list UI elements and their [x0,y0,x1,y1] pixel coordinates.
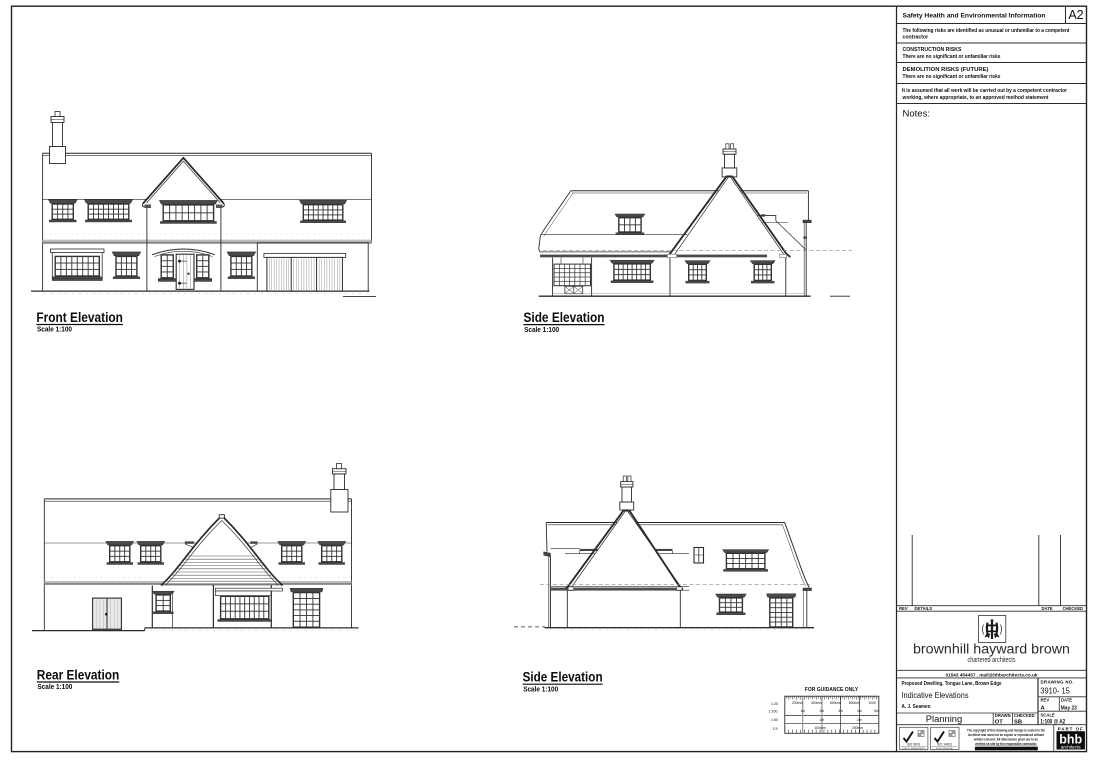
svg-text:DRAWING NO.: DRAWING NO. [1041,680,1075,685]
svg-text:1:5: 1:5 [773,727,778,731]
svg-text:2m: 2m [857,718,862,722]
svg-text:ENVIRONMENTAL: ENVIRONMENTAL [936,747,954,750]
svg-text:1:50: 1:50 [771,718,778,722]
svg-text:800mm: 800mm [849,701,860,705]
svg-text:2m: 2m [819,709,824,713]
svg-text:1:20: 1:20 [771,702,778,706]
svg-text:Safety Health and Environmenta: Safety Health and Environmental Informat… [903,12,1046,19]
svg-text:DATE: DATE [1042,606,1053,611]
svg-text:REV: REV [1041,698,1050,703]
svg-text:CHECKED: CHECKED [1063,606,1084,611]
svg-text:200mm: 200mm [852,726,863,730]
svg-text:4m: 4m [857,709,862,713]
svg-text:Front Elevation: Front Elevation [36,310,123,325]
svg-text:There are no significant or un: There are no significant or unfamiliar r… [903,74,1001,80]
svg-text:Rear Elevation: Rear Elevation [37,667,120,682]
svg-text:working, where appropriate, to: working, where appropriate, to an approv… [902,95,1049,101]
svg-text:brownhill hayward brown: brownhill hayward brown [913,642,1070,657]
svg-text:3910- 15: 3910- 15 [1040,686,1070,696]
svg-text:1m: 1m [801,709,806,713]
svg-text:Scale 1:100: Scale 1:100 [37,325,72,334]
svg-text:QUALITY MANAGEMENT: QUALITY MANAGEMENT [902,747,926,750]
svg-text:A. J. Seamen: A. J. Seamen [902,704,931,710]
svg-text:Scale 1:100: Scale 1:100 [37,682,72,691]
svg-text:DATE: DATE [1061,698,1072,703]
svg-text:100mm: 100mm [814,726,825,730]
svg-text:FOR GUIDANCE ONLY: FOR GUIDANCE ONLY [805,687,859,693]
svg-text:1m: 1m [819,718,824,722]
svg-text:Indicative Elevations: Indicative Elevations [902,691,969,700]
svg-text:CHECKED: CHECKED [1014,713,1035,718]
svg-text:contractor: contractor [903,35,929,41]
svg-text:There are no significant or un: There are no significant or unfamiliar r… [903,54,1001,60]
svg-text:1:100: 1:100 [769,710,778,714]
svg-text:SCALE: SCALE [1041,712,1055,717]
svg-text:01543 454457 . mail@bhbarchi: 01543 454457 . mail@bhbarchitects.co.uk [946,672,1039,677]
svg-text:DETAILS: DETAILS [915,606,933,611]
svg-text:A2: A2 [1068,8,1083,22]
svg-text:Proposed Dwelling, Tongue Lane: Proposed Dwelling, Tongue Lane, Brown Ed… [902,681,1002,687]
svg-text:ISO 9001: ISO 9001 [907,742,921,746]
svg-text:Planning: Planning [926,714,963,725]
svg-text:CONSTRUCTION RISKS: CONSTRUCTION RISKS [903,47,962,53]
svg-text:200mm: 200mm [792,701,803,705]
svg-text:It is assumed that all work wi: It is assumed that all work will be carr… [902,88,1067,94]
svg-text:chartered architects: chartered architects [968,657,1016,664]
svg-text:REV: REV [899,606,908,611]
svg-text:600mm: 600mm [830,701,841,705]
svg-text:architects: architects [1061,744,1081,749]
svg-text:DEMOLITION RISKS (FUTURE): DEMOLITION RISKS (FUTURE) [903,67,989,73]
svg-text:Side Elevation: Side Elevation [524,310,605,325]
svg-text:400mm: 400mm [811,701,822,705]
svg-text:Scale 1:100: Scale 1:100 [523,684,558,693]
svg-text:3m: 3m [838,709,843,713]
svg-text:The copyright of this drawing: The copyright of this drawing and design… [967,729,1045,733]
svg-text:5m: 5m [874,709,879,713]
svg-text:DRAWN: DRAWN [995,713,1011,718]
svg-text:Scale 1:100: Scale 1:100 [524,325,559,334]
svg-text:Architect and must not be copi: Architect and must not be copied or repr… [968,733,1045,737]
svg-text:Notes:: Notes: [903,109,930,120]
svg-text:written consent. All dimension: written consent. All dimensions given ar… [973,738,1038,742]
svg-text:PART OF: PART OF [1058,726,1084,731]
svg-text:Side Elevation: Side Elevation [523,670,603,685]
svg-text:The following risks are identi: The following risks are identified as un… [903,28,1070,34]
svg-text:verified on site by the respon: verified on site by the responsible cont… [975,742,1037,746]
svg-text:1000: 1000 [868,701,876,705]
svg-text:ISO 14001: ISO 14001 [937,742,952,746]
svg-text:May 23: May 23 [1061,705,1078,711]
